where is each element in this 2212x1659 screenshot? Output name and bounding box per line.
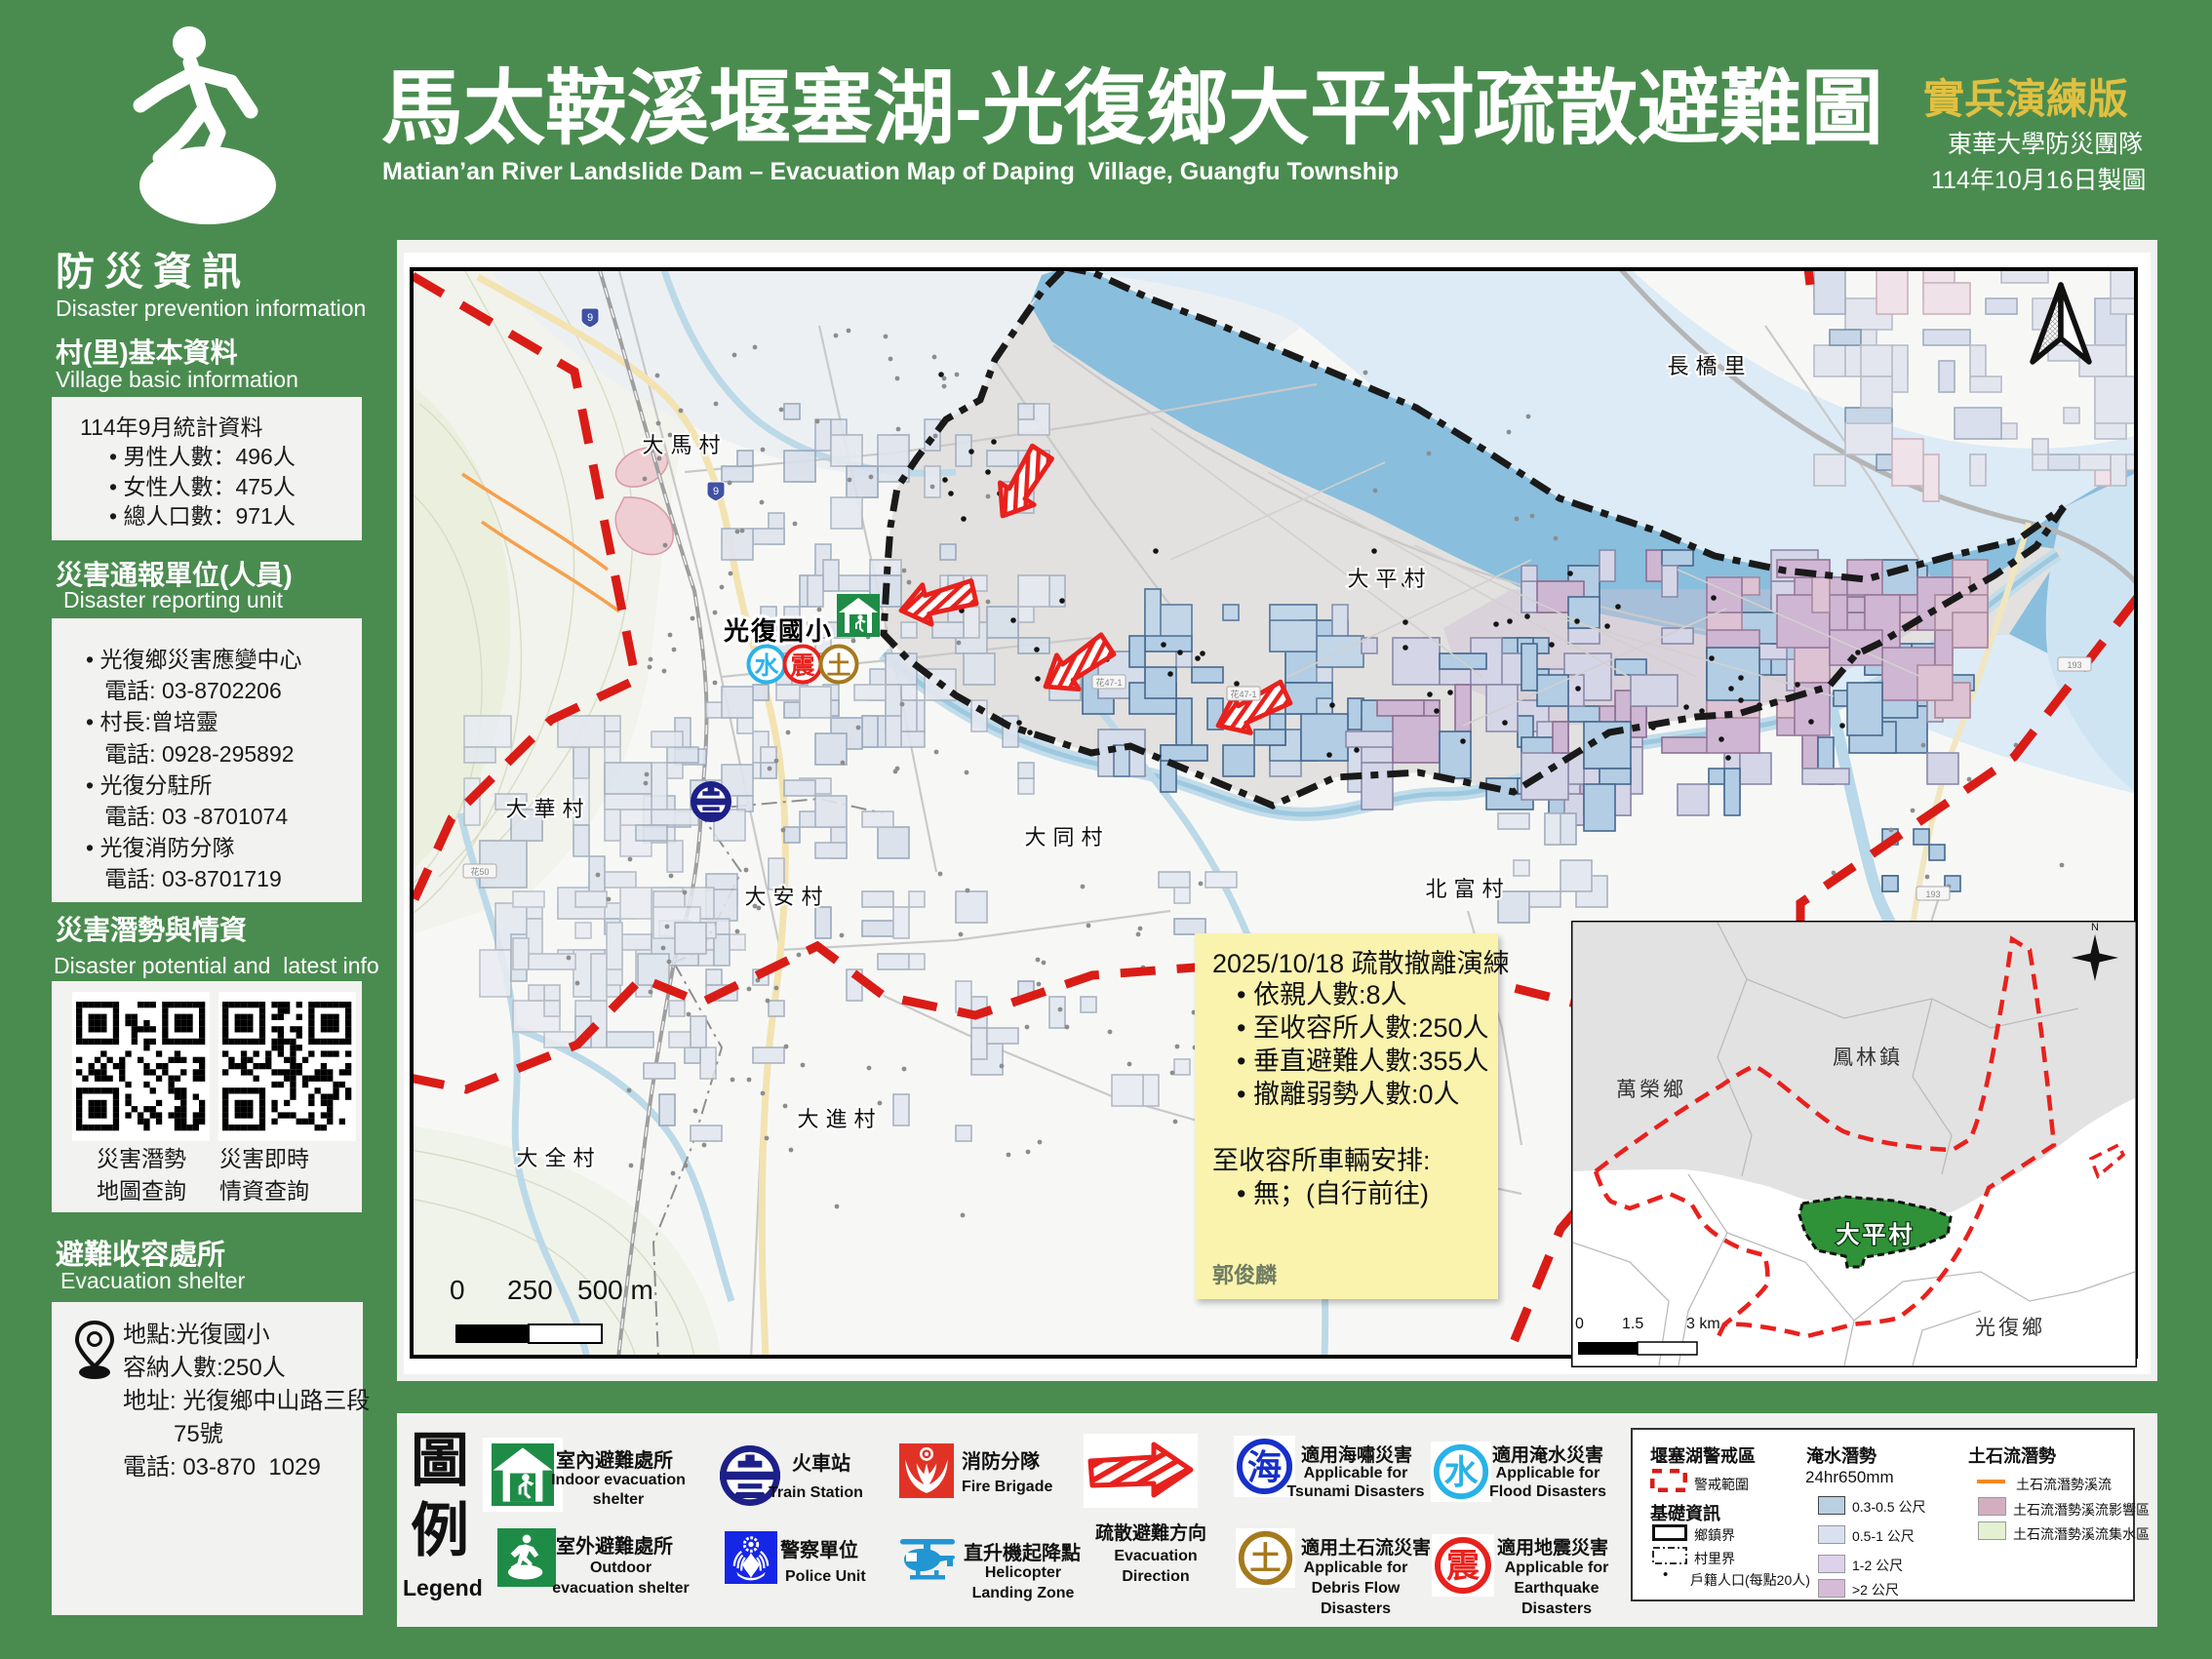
svg-text:大平村: 大平村 <box>1347 567 1432 591</box>
svg-text:花50: 花50 <box>470 866 489 877</box>
svg-text:震: 震 <box>1446 1548 1481 1585</box>
svg-text:N: N <box>2091 922 2099 933</box>
svg-text:光復國小: 光復國小 <box>723 616 833 646</box>
svg-text:3 km: 3 km <box>1686 1316 1720 1332</box>
svg-text:震: 震 <box>790 652 815 680</box>
svg-text:9: 9 <box>713 486 719 497</box>
svg-text:光復鄉: 光復鄉 <box>1975 1317 2045 1339</box>
svg-text:大平村: 大平村 <box>1837 1222 1916 1248</box>
svg-text:花47-1: 花47-1 <box>1095 677 1122 688</box>
svg-text:193: 193 <box>1925 889 1940 899</box>
svg-text:鳳林鎮: 鳳林鎮 <box>1833 1047 1903 1069</box>
svg-text:水: 水 <box>754 652 779 680</box>
svg-text:土: 土 <box>1249 1541 1281 1576</box>
svg-text:長橋里: 長橋里 <box>1667 354 1752 378</box>
svg-text:1.5: 1.5 <box>1622 1316 1643 1332</box>
svg-text:250: 250 <box>507 1275 553 1305</box>
svg-text:土: 土 <box>826 652 850 680</box>
svg-text:0: 0 <box>1575 1316 1584 1332</box>
svg-text:193: 193 <box>2067 660 2081 670</box>
svg-text:0: 0 <box>450 1275 465 1305</box>
svg-text:北富村: 北富村 <box>1425 877 1510 901</box>
svg-text:大馬村: 大馬村 <box>642 433 727 457</box>
svg-text:大進村: 大進村 <box>797 1107 882 1131</box>
svg-text:花47-1: 花47-1 <box>1230 689 1256 699</box>
svg-text:大全村: 大全村 <box>516 1146 601 1170</box>
svg-text:500 m: 500 m <box>577 1275 653 1305</box>
svg-text:大安村: 大安村 <box>744 885 829 909</box>
svg-text:大同村: 大同村 <box>1024 825 1109 849</box>
svg-text:大華村: 大華村 <box>505 797 590 821</box>
svg-text:萬榮鄉: 萬榮鄉 <box>1616 1079 1686 1101</box>
svg-text:水: 水 <box>1444 1454 1479 1492</box>
svg-text:海: 海 <box>1247 1447 1282 1486</box>
svg-text:9: 9 <box>587 312 593 324</box>
